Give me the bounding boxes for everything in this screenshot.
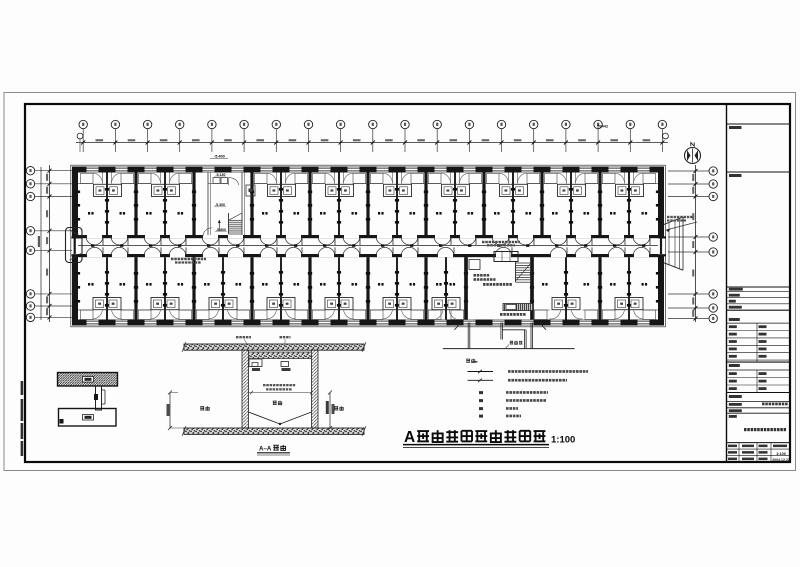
svg-text:1:100: 1:100 bbox=[551, 435, 575, 446]
svg-text:A: A bbox=[404, 429, 415, 446]
svg-text:1:100: 1:100 bbox=[776, 452, 786, 456]
svg-text:-5.300: -5.300 bbox=[215, 203, 225, 207]
svg-text:-5.800: -5.800 bbox=[216, 228, 226, 232]
svg-text:-5.400: -5.400 bbox=[214, 155, 225, 159]
svg-text:-5.140: -5.140 bbox=[216, 173, 226, 177]
svg-text:59442: 59442 bbox=[597, 124, 609, 129]
svg-text:2004.12.22: 2004.12.22 bbox=[772, 458, 790, 462]
svg-text:A–A: A–A bbox=[259, 446, 272, 453]
